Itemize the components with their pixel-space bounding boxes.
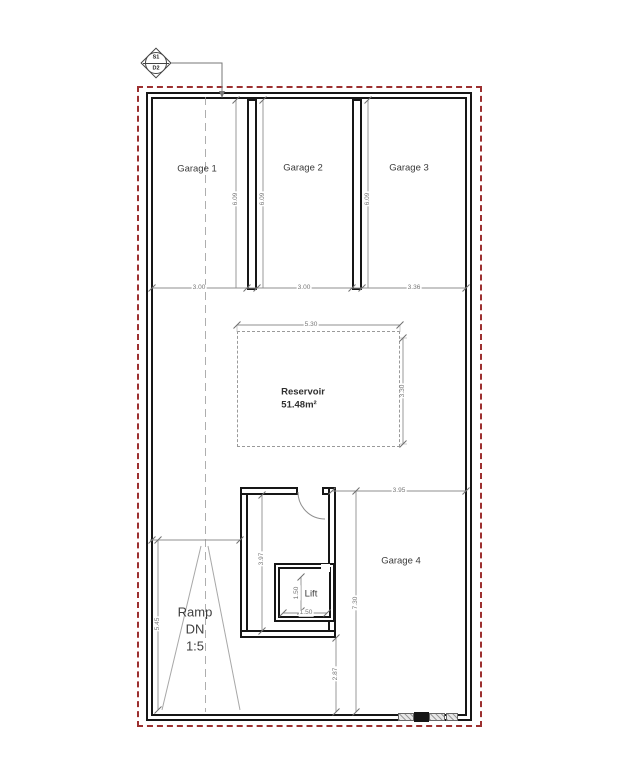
room-label-reservoir: Reservoir (281, 387, 325, 398)
ramp-label-line2: DN (178, 621, 213, 638)
dim-garage3-width: 3.36 (407, 285, 422, 292)
room-label-garage2: Garage 2 (283, 163, 323, 174)
dim-garage2-width: 3.00 (297, 285, 312, 292)
dim-reservoir-depth: 3.30 (400, 384, 407, 399)
ramp-label-line1: Ramp (178, 604, 213, 621)
room-label-lift: Lift (305, 589, 318, 600)
section-marker-top-text: S1 (153, 55, 160, 61)
dim-garage1-depth: 6.09 (233, 192, 240, 207)
section-marker-bottom-text: D2 (152, 66, 159, 72)
door-swing-arc (298, 492, 325, 519)
dim-garage3-depth: 6.09 (365, 192, 372, 207)
dim-garage2-depth: 6.09 (260, 192, 267, 207)
dim-ramp-length: 5.45 (155, 617, 162, 632)
dim-garage4-width: 3.95 (392, 488, 407, 495)
dim-lift-to-wall: 2.87 (333, 667, 340, 682)
floor-plan: Garage 1 Garage 2 Garage 3 Garage 4 Rese… (0, 0, 628, 768)
dim-reservoir-width: 5.30 (304, 322, 319, 329)
section-marker-divider (143, 63, 169, 64)
dim-lift-width: 1.50 (299, 610, 314, 617)
dim-garage4-depth: 7.30 (353, 596, 360, 611)
dim-lift-depth: 1.50 (294, 586, 301, 601)
reservoir-area-label: 51.48m² (281, 400, 316, 411)
dim-stair-depth: 3.97 (259, 552, 266, 567)
dimension-linework (0, 0, 628, 768)
dim-garage1-width: 3.00 (192, 285, 207, 292)
extension-lines (237, 325, 407, 444)
room-label-garage1: Garage 1 (177, 164, 217, 175)
ramp-label-line3: 1:5 (178, 638, 213, 655)
ramp-label: Ramp DN 1:5 (178, 604, 213, 655)
section-leader-line (168, 63, 225, 98)
room-label-garage3: Garage 3 (389, 163, 429, 174)
room-label-garage4: Garage 4 (381, 556, 421, 567)
